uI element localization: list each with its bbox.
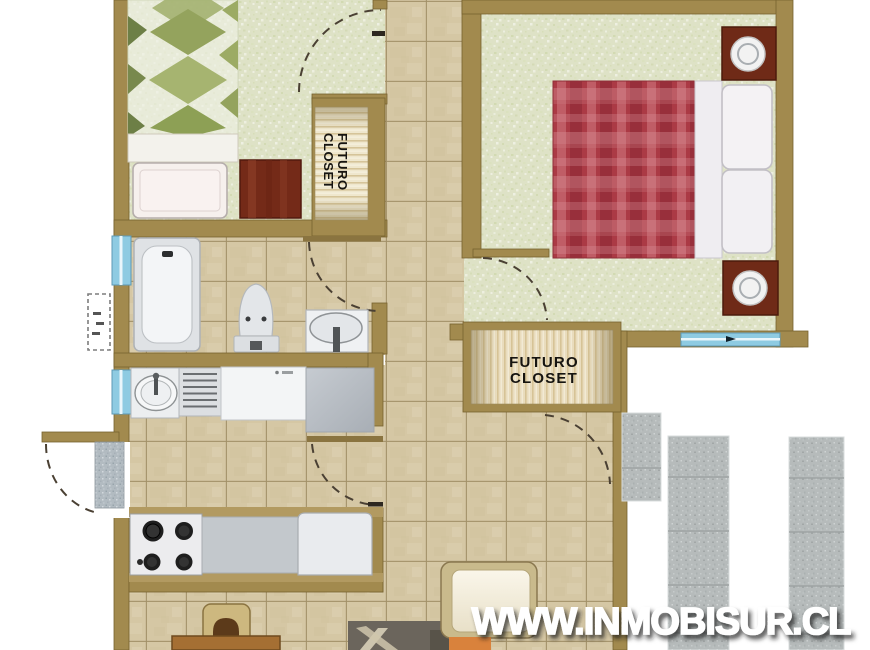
- svg-text:CLOSET: CLOSET: [510, 370, 578, 387]
- svg-text:FUTUROCLOSET: FUTUROCLOSET: [321, 133, 350, 191]
- svg-text:WWW.INMOBISUR.CL: WWW.INMOBISUR.CL: [472, 601, 852, 643]
- svg-text:FUTURO: FUTURO: [509, 354, 579, 371]
